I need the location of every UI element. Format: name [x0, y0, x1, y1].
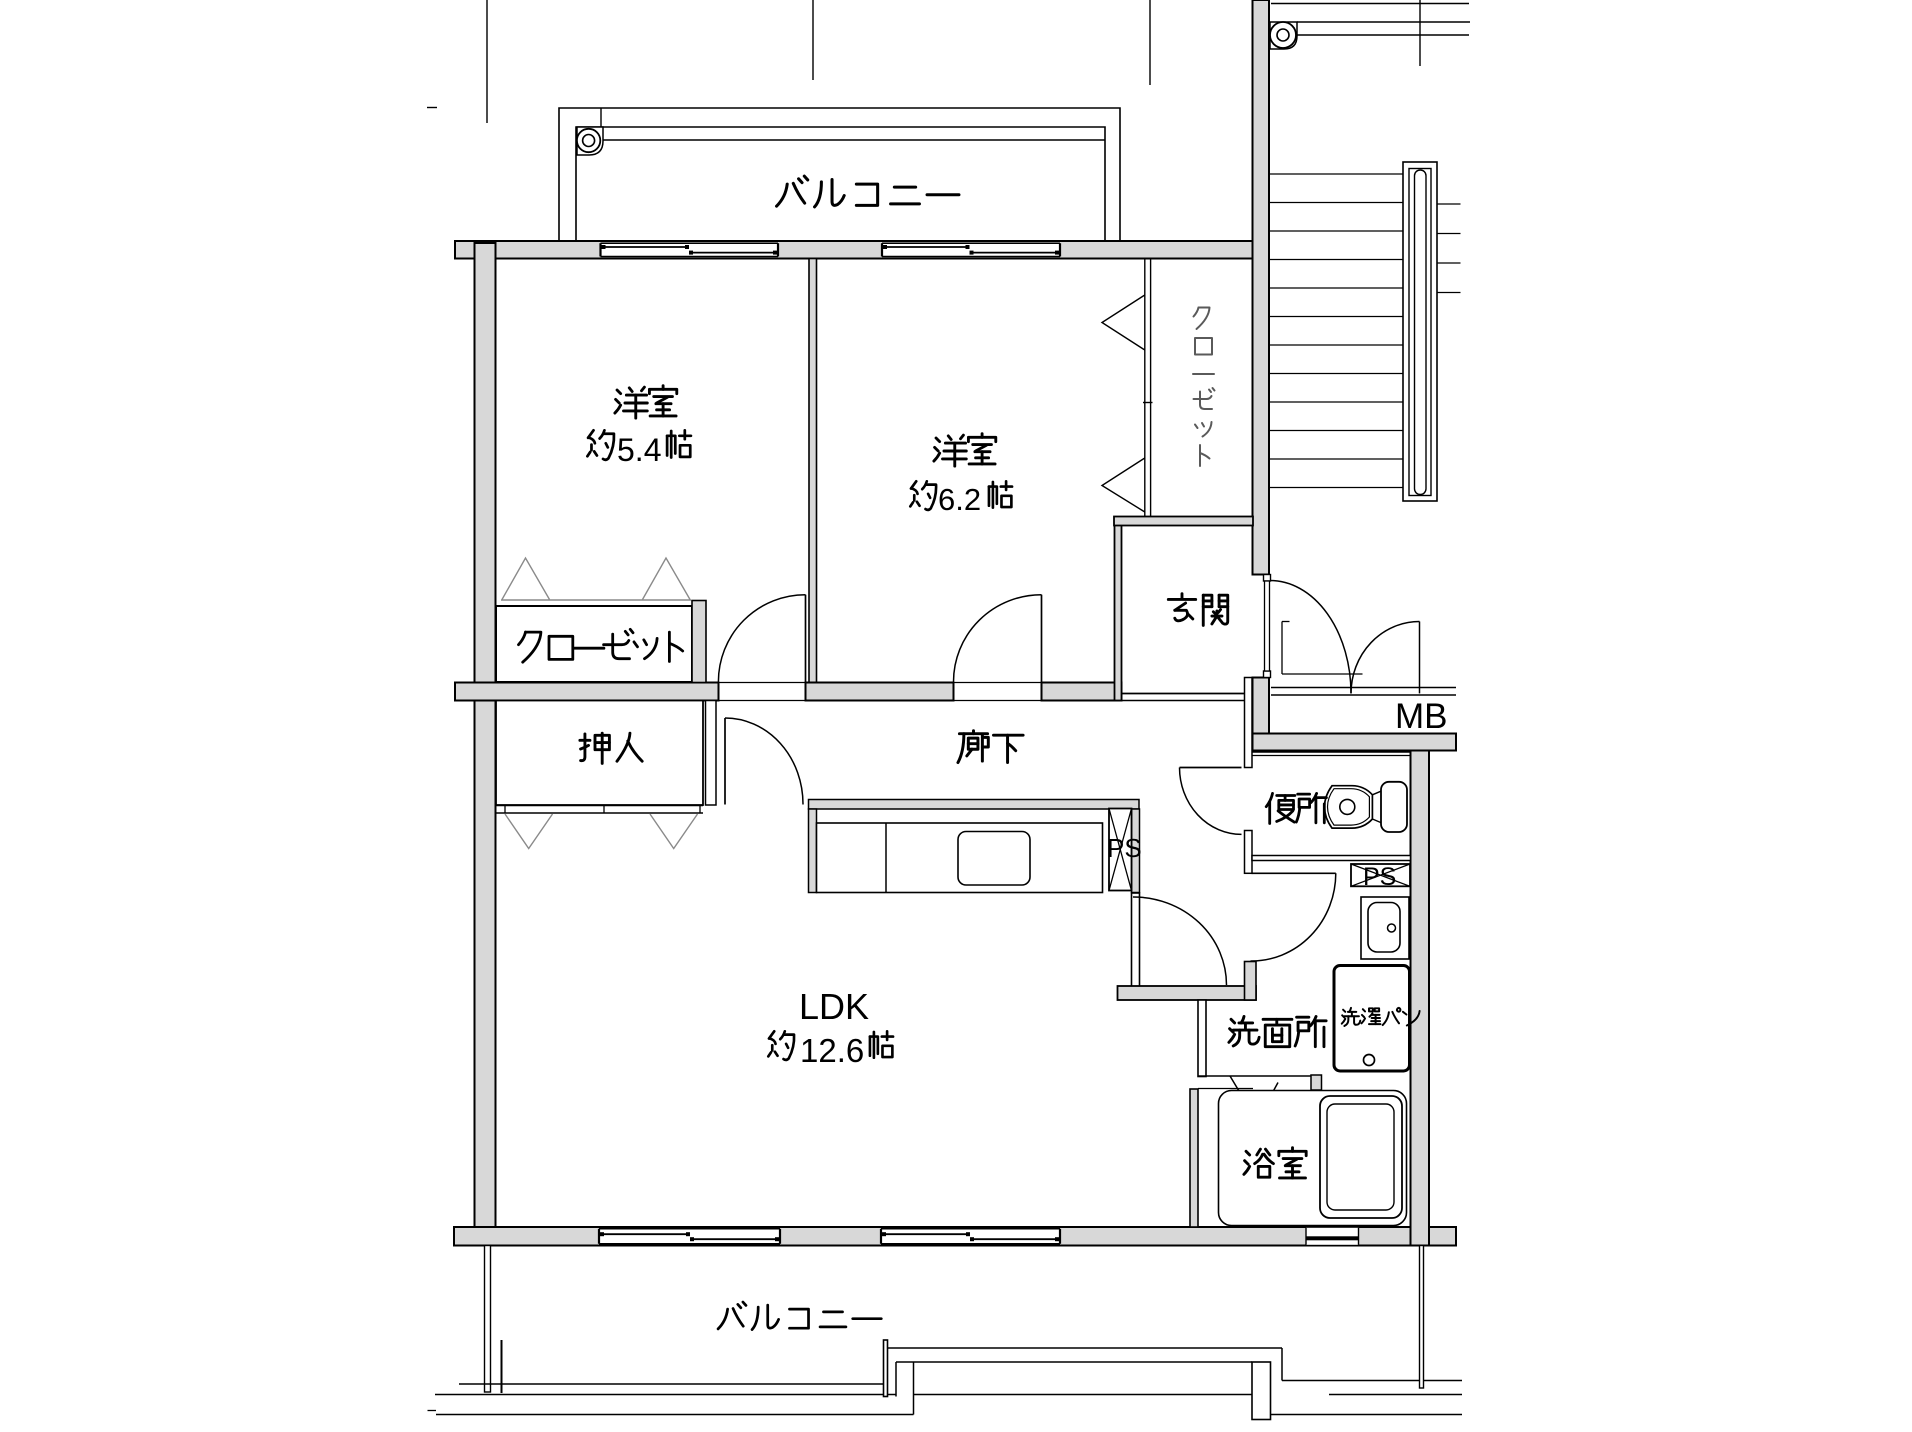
svg-text:PS: PS [1363, 863, 1396, 891]
svg-text:5.4: 5.4 [617, 432, 661, 468]
svg-text:12.6: 12.6 [800, 1032, 864, 1069]
svg-text:MB: MB [1395, 697, 1448, 736]
svg-text:PS: PS [1107, 833, 1142, 863]
svg-text:LDK: LDK [799, 986, 869, 1027]
svg-text:6.2: 6.2 [938, 482, 981, 517]
